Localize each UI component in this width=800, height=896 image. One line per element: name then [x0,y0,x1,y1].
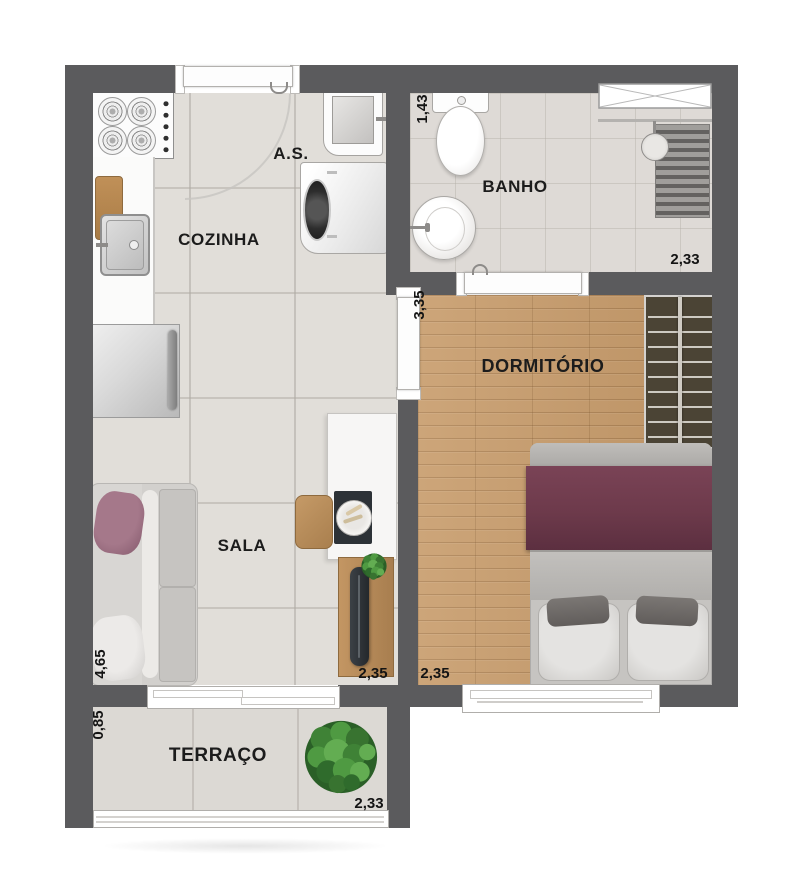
stove [92,92,174,159]
burner-icon [98,126,127,155]
tv [350,567,369,666]
accent-pillow [635,595,698,626]
wall-sala-dorm [398,388,418,685]
room-label-banho: BANHO [477,177,553,197]
bathroom-sink [412,196,476,260]
floor-plan: COZINHA A.S. BANHO DORMITÓRIO SALA TERRA… [0,0,800,896]
folded-blanket [530,550,712,600]
sofa-seat [159,587,196,682]
burner-icon [98,97,127,126]
bed-cover [526,466,716,550]
fridge-handle [168,330,177,410]
wardrobe [644,295,716,449]
stool [295,495,333,549]
plate-icon [336,500,372,536]
fridge [90,324,180,418]
placemat [334,491,372,544]
room-label-terraco: TERRAÇO [163,746,273,766]
plant [359,551,389,581]
sliding-panel [241,697,335,705]
wall-left [65,65,93,828]
terrace-plant [299,716,383,798]
wall-bath-bottom-right [582,272,738,295]
door-handle-icon [472,264,488,275]
faucet-icon [96,243,108,247]
dim-sala-width: 2,35 [350,666,396,682]
bathroom-window [598,83,712,109]
wall-bottom-a [93,685,147,707]
dim-terraco-width: 2,33 [346,796,392,812]
room-label-sala: SALA [215,536,269,556]
room-label-dormitorio: DORMITÓRIO [475,356,611,376]
wall-right [712,65,738,707]
dim-sala-depth: 4,65 [93,644,109,684]
toilet-bowl [436,106,485,176]
terrace-railing [93,810,389,828]
wardrobe-rod [678,297,682,447]
sliding-door [147,686,340,709]
double-bed [530,443,712,685]
bathroom-door [464,272,582,294]
wall-bottom-b [338,685,462,707]
dim-terraco-depth: 0,85 [91,705,107,745]
room-label-cozinha: COZINHA [164,230,274,250]
headboard [530,443,712,467]
washer-door-icon [303,179,331,241]
room-label-as: A.S. [267,144,315,164]
sliding-panel [153,690,243,698]
bedroom-window [462,684,660,713]
shower-head-icon [641,133,669,161]
toilet [432,88,489,176]
washing-machine [300,162,388,254]
kitchen-sink [100,214,150,276]
dim-as-depth: 1,43 [415,89,431,129]
sofa-seat [159,489,196,587]
burner-icon [127,126,156,155]
soft-shadow [100,838,390,854]
wall-as-bath [386,93,410,272]
accent-pillow [546,595,610,627]
dim-dormitorio-width: 2,35 [412,666,458,682]
stove-knobs [160,96,172,154]
drain-icon [129,240,139,250]
laundry-sink [323,88,383,156]
wall-bottom-c [658,685,738,707]
burner-icon [127,97,156,126]
window-pane [470,690,652,699]
dim-dormitorio-depth: 3,35 [412,285,428,325]
dim-banho-width: 2,33 [662,252,708,268]
